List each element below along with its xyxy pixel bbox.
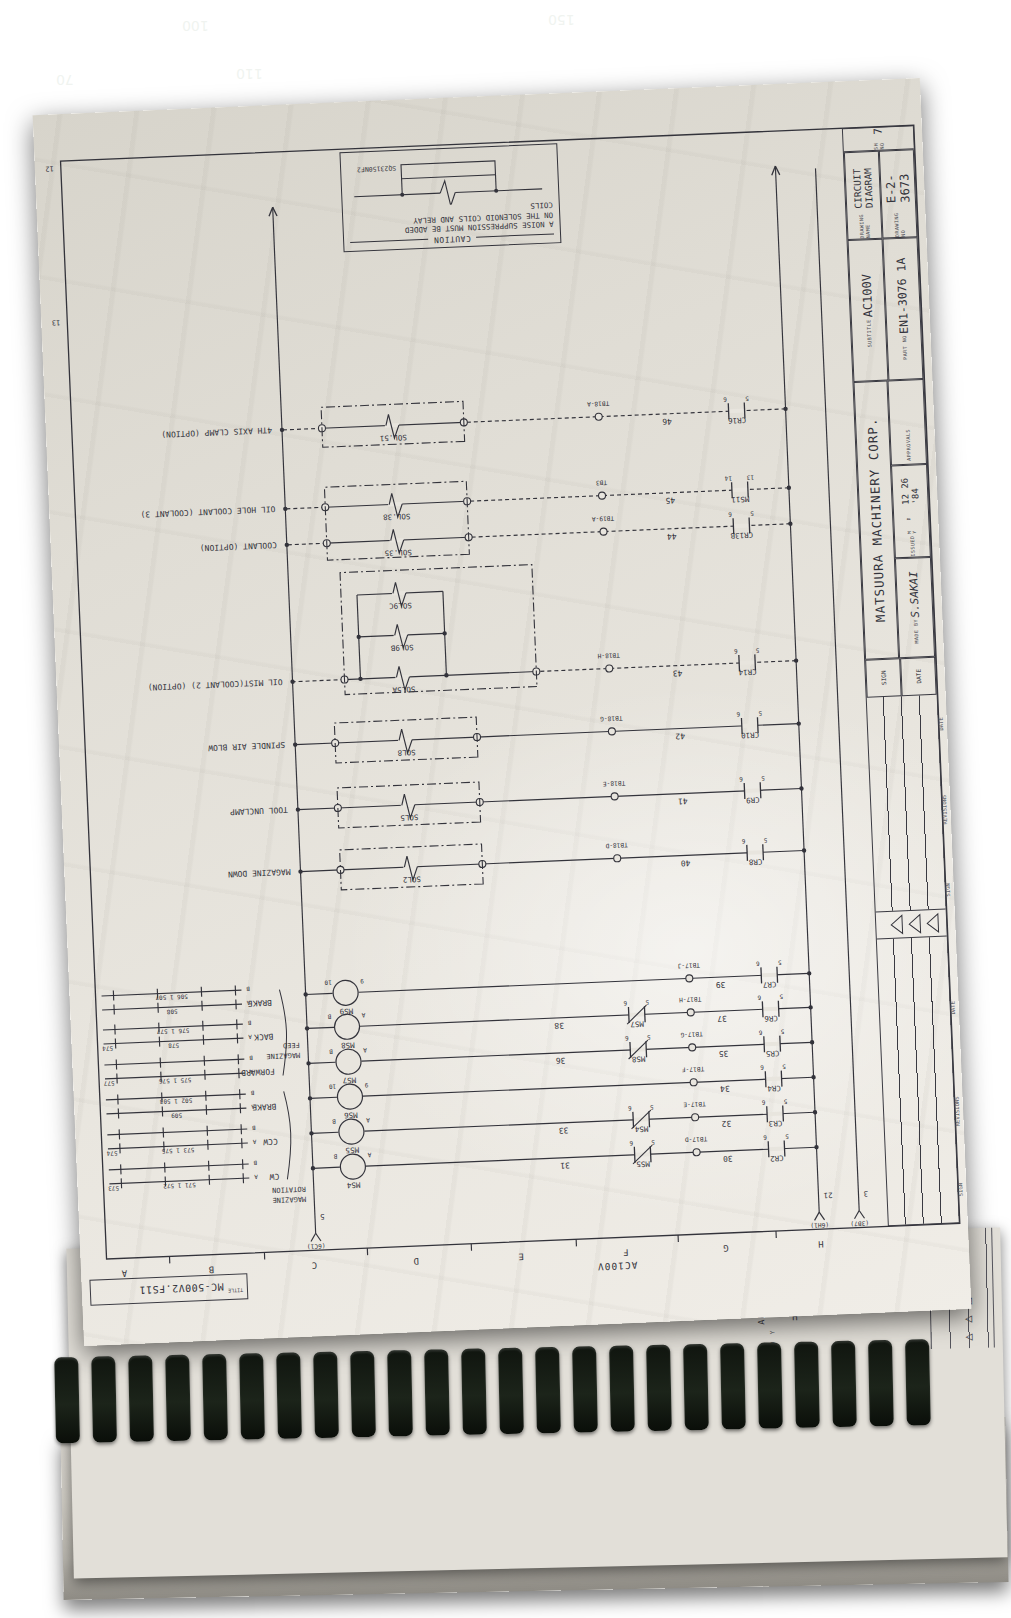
motor-rung-34: CR45634TB17-FMS6910BRAKEAB509502 1 503 — [106, 1061, 817, 1130]
sheet-face: (3B7)3(6H1)21(6C1)51312CR25630TB17-DMS55… — [33, 78, 972, 1346]
svg-text:574: 574 — [102, 1045, 114, 1052]
svg-text:574: 574 — [106, 1150, 118, 1157]
svg-text:13: 13 — [52, 318, 61, 326]
svg-text:6: 6 — [757, 994, 761, 1001]
drawing-name-cell: DRAWING NAME CIRCUIT DIAGRAM — [844, 151, 883, 240]
svg-text:39: 39 — [715, 980, 725, 989]
svg-text:44: 44 — [667, 532, 677, 541]
comb-tooth — [831, 1341, 857, 1427]
svg-text:6: 6 — [761, 1099, 765, 1106]
svg-text:MS7: MS7 — [630, 1019, 644, 1029]
svg-text:5: 5 — [782, 1063, 786, 1070]
svg-text:MS5: MS5 — [345, 1145, 359, 1155]
svg-text:TB17-E: TB17-E — [683, 1101, 706, 1109]
grid-letter: D — [413, 1256, 419, 1266]
svg-text:SOL.51: SOL.51 — [380, 433, 407, 443]
svg-text:578: 578 — [168, 1042, 180, 1049]
svg-text:SOL9C: SOL9C — [389, 601, 412, 611]
svg-text:OIL HOLE COOLANT (COOLANT 3): OIL HOLE COOLANT (COOLANT 3) — [140, 504, 275, 519]
svg-text:CR2: CR2 — [770, 1154, 784, 1164]
comb-tooth — [757, 1342, 783, 1428]
svg-text:MS6: MS6 — [343, 1110, 357, 1120]
svg-text:A: A — [366, 1117, 370, 1124]
caution-rule — [476, 234, 554, 238]
svg-text:5: 5 — [750, 510, 754, 517]
strip-margin-label: REVISIONS — [954, 1096, 963, 1126]
svg-text:B: B — [329, 1048, 333, 1055]
svg-text:6: 6 — [760, 1064, 764, 1071]
sheet-no-cell: SH NO 7 — [843, 126, 914, 152]
svg-text:TB18-E: TB18-E — [603, 780, 626, 788]
ladder-schematic: (3B7)3(6H1)21(6C1)51312CR25630TB17-DMS55… — [33, 78, 972, 1346]
svg-text:TB18-H: TB18-H — [597, 652, 620, 660]
comb-tooth — [387, 1350, 413, 1436]
svg-text:508: 508 — [166, 1008, 178, 1015]
svg-text:B: B — [332, 1118, 336, 1125]
svg-text:5: 5 — [755, 647, 759, 654]
svg-text:MS7: MS7 — [342, 1075, 356, 1085]
comb-tooth — [276, 1352, 302, 1438]
svg-text:5: 5 — [777, 960, 781, 967]
svg-text:43: 43 — [672, 668, 682, 677]
svg-text:5: 5 — [783, 1098, 787, 1105]
svg-text:5: 5 — [779, 993, 783, 1000]
subtitle-label: SUBTITLE — [865, 319, 872, 347]
comb-tooth — [720, 1343, 746, 1429]
comb-tooth — [498, 1348, 524, 1434]
revision-triangle-icon: ◁ — [965, 1312, 973, 1324]
svg-text:CR6: CR6 — [764, 1014, 778, 1024]
svg-text:MS8: MS8 — [631, 1054, 645, 1064]
svg-text:MS4: MS4 — [634, 1124, 648, 1134]
mat-number: 110 — [236, 66, 263, 82]
svg-text:35: 35 — [718, 1049, 728, 1058]
strip-margin-label: SIGN — [957, 1183, 966, 1197]
drawing-no-cell: DRAWING NO E-2-3673 — [879, 149, 918, 238]
svg-text:CW: CW — [269, 1172, 279, 1181]
grid-letter: G — [723, 1243, 729, 1253]
svg-text:6: 6 — [733, 648, 737, 655]
svg-text:4TH AXIS CLAMP (OPTION): 4TH AXIS CLAMP (OPTION) — [161, 425, 272, 439]
svg-text:6: 6 — [624, 1035, 628, 1042]
svg-text:6: 6 — [728, 511, 732, 518]
svg-text:TB18-A: TB18-A — [587, 400, 610, 408]
comb-tooth — [128, 1355, 154, 1441]
revision-triangle-icon — [891, 915, 903, 933]
motor-rung-32: CR35632TB17-EMS45633MS5ABCCWAB573 1 5755… — [105, 1096, 818, 1165]
part-no-value: EN1-3076 1A — [894, 257, 911, 334]
svg-text:34: 34 — [720, 1084, 730, 1093]
motor-rung-30: CR25630TB17-DMS55631MS4ABCWAB571 1 57257… — [107, 1131, 820, 1200]
svg-text:MS4: MS4 — [346, 1180, 360, 1190]
comb-tooth — [868, 1340, 894, 1426]
revision-triangle-icon — [927, 914, 939, 932]
svg-text:B: B — [246, 986, 250, 992]
svg-text:576 1 577: 576 1 577 — [156, 1027, 189, 1035]
suppressor-part-number: SQ23150NF2 — [357, 164, 397, 174]
svg-text:CCW: CCW — [263, 1137, 278, 1147]
svg-text:COOLANT (OPTION): COOLANT (OPTION) — [200, 540, 277, 552]
comb-tooth — [424, 1349, 450, 1435]
svg-text:6: 6 — [629, 1140, 633, 1147]
comb-tooth — [646, 1345, 672, 1431]
svg-text:SOL2: SOL2 — [403, 875, 421, 885]
part-no-label: PART NO — [901, 336, 908, 361]
svg-text:CR14: CR14 — [738, 667, 757, 677]
svg-text:B: B — [333, 1153, 337, 1160]
svg-text:CR13B: CR13B — [730, 530, 753, 540]
photo-of-circuit-diagram-page: 100 110 150 70 ◁ ◁ ◁ AP CARD M D Y G H (… — [0, 0, 1011, 1618]
sol-rung-42: CR105642TB18-GSOL8SPINDLE AIR BLOW — [207, 708, 801, 766]
comb-tooth — [202, 1354, 228, 1440]
approvals-cell: APPROVALS — [887, 379, 927, 465]
svg-text:TB17-J: TB17-J — [677, 962, 700, 970]
comb-tooth — [609, 1345, 635, 1431]
svg-text:TB3: TB3 — [596, 479, 608, 486]
sol-rung-45: MS11131445TB3SOL.38OIL HOLE COOLANT (COO… — [140, 472, 792, 532]
comb-tooth — [794, 1341, 820, 1427]
comb-tooth — [313, 1352, 339, 1438]
svg-text:33: 33 — [558, 1126, 568, 1135]
subtitle-value: AC100V — [859, 273, 875, 317]
svg-text:B: B — [250, 1090, 254, 1096]
svg-text:OIL MIST(COOLANT 2) (OPTION): OIL MIST(COOLANT 2) (OPTION) — [148, 677, 283, 692]
svg-text:12: 12 — [45, 164, 54, 172]
date-header-cell: DATE — [900, 657, 937, 696]
comb-tooth — [91, 1356, 117, 1442]
svg-text:45: 45 — [665, 496, 675, 505]
svg-text:506 1 507: 506 1 507 — [155, 993, 188, 1001]
made-by-cell: MADE BY S.SAKAI — [895, 557, 935, 658]
revision-triangle-icon — [909, 915, 921, 933]
svg-text:A: A — [254, 1174, 258, 1180]
svg-text:5: 5 — [785, 1133, 789, 1140]
mat-number: 150 — [548, 12, 575, 28]
svg-text:5: 5 — [651, 1139, 655, 1146]
svg-text:6: 6 — [741, 838, 745, 845]
svg-text:A: A — [361, 1012, 365, 1019]
svg-text:5: 5 — [646, 1034, 650, 1041]
svg-text:10: 10 — [328, 1083, 336, 1090]
comb-tooth — [905, 1339, 931, 1425]
svg-text:9: 9 — [364, 1082, 368, 1089]
svg-text:SOL8: SOL8 — [397, 748, 416, 758]
svg-text:SPINDLE AIR BLOW: SPINDLE AIR BLOW — [208, 740, 286, 752]
svg-text:B: B — [247, 1020, 251, 1026]
svg-text:6: 6 — [755, 960, 759, 967]
caution-title: CAUTION — [433, 233, 471, 245]
svg-text:TB17-D: TB17-D — [684, 1136, 707, 1144]
circuit-diagram-sheet: (3B7)3(6H1)21(6C1)51312CR25630TB17-DMS55… — [33, 78, 972, 1346]
svg-text:FORWARD: FORWARD — [241, 1067, 275, 1077]
strip-margin-label: REVISIONS — [941, 795, 950, 825]
comb-tooth — [239, 1353, 265, 1439]
strip-margin-label: DATE — [950, 1001, 959, 1015]
file-box-value: MC-500V2.FS11 — [139, 1282, 224, 1297]
svg-text:509: 509 — [171, 1112, 183, 1119]
svg-text:10: 10 — [324, 979, 332, 986]
part-no-cell: PART NO EN1-3076 1A — [883, 237, 924, 380]
svg-text:A: A — [248, 1034, 252, 1040]
sheet-no-label: SH NO — [872, 137, 885, 150]
svg-text:5: 5 — [645, 999, 649, 1006]
svg-text:CR3: CR3 — [769, 1119, 783, 1129]
svg-text:6: 6 — [763, 1134, 767, 1141]
strip-margin-label: SIGN — [945, 883, 954, 897]
sol-rung-46: CR165646TB18-ASOL.514TH AXIS CLAMP (OPTI… — [161, 393, 789, 452]
grid-letter: E — [518, 1252, 524, 1262]
subtitle-cell: SUBTITLE AC100V — [848, 239, 889, 382]
svg-text:6: 6 — [736, 711, 740, 718]
svg-text:5: 5 — [763, 837, 767, 844]
svg-text:6: 6 — [627, 1105, 631, 1112]
caution-rule — [350, 239, 428, 243]
svg-text:14: 14 — [724, 475, 732, 482]
svg-text:577: 577 — [103, 1080, 115, 1087]
issued-units: M D Y — [906, 507, 917, 534]
svg-text:575 1 576: 575 1 576 — [158, 1077, 191, 1085]
svg-text:A: A — [249, 1069, 253, 1075]
supply-voltage-label: AC100V — [597, 1260, 638, 1273]
revision-triangle-row — [876, 909, 947, 940]
svg-text:SOL5A: SOL5A — [392, 685, 415, 695]
svg-text:MAGAZINE: MAGAZINE — [272, 1195, 306, 1204]
svg-text:6: 6 — [758, 1029, 762, 1036]
comb-tooth — [535, 1347, 561, 1433]
revision-triangle-icon: ◁ — [965, 1330, 973, 1342]
svg-text:6: 6 — [739, 776, 743, 783]
svg-text:9: 9 — [360, 978, 364, 985]
svg-text:A: A — [363, 1047, 367, 1054]
svg-text:TB18-D: TB18-D — [605, 842, 628, 850]
svg-text:6: 6 — [723, 396, 727, 403]
comb-tooth — [572, 1346, 598, 1432]
svg-text:SOL.35: SOL.35 — [385, 548, 412, 558]
svg-text:BACK: BACK — [254, 1032, 274, 1042]
sheet-no-value: 7 — [871, 127, 884, 134]
svg-text:B: B — [252, 1125, 256, 1131]
svg-text:B: B — [327, 1013, 331, 1020]
svg-text:A: A — [246, 1000, 250, 1006]
revision-rows — [867, 695, 946, 912]
comb-tooth — [350, 1351, 376, 1437]
svg-text:5: 5 — [649, 1104, 653, 1111]
svg-text:TB17-H: TB17-H — [679, 996, 702, 1004]
issued-label: ISSUED — [909, 535, 916, 556]
sol-rung-44: CR13B5644TB19-ASOL.35COOLANT (OPTION) — [199, 508, 793, 566]
drawing-no-label: DRAWING NO — [893, 205, 906, 237]
mat-number: 70 — [56, 72, 74, 88]
revision-rows — [877, 937, 959, 1226]
svg-text:CR7: CR7 — [763, 980, 777, 990]
svg-text:38: 38 — [554, 1021, 564, 1030]
svg-text:SOL5: SOL5 — [400, 813, 418, 823]
svg-text:MS8: MS8 — [340, 1040, 354, 1050]
svg-text:BRAKE: BRAKE — [248, 998, 273, 1008]
svg-text:BRAKE: BRAKE — [252, 1102, 277, 1112]
svg-text:CR9: CR9 — [746, 795, 760, 805]
svg-text:6: 6 — [623, 1000, 627, 1007]
sol-rung-40: CR85640TB18-DSOL2MAGAZINE DOWN — [227, 834, 807, 891]
grid-letter: H — [818, 1239, 824, 1249]
svg-text:37: 37 — [717, 1014, 727, 1023]
svg-text:B: B — [253, 1160, 257, 1166]
approvals-label: APPROVALS — [905, 429, 912, 461]
svg-text:5: 5 — [745, 395, 749, 402]
svg-text:FEED: FEED — [283, 1041, 300, 1050]
svg-text:TOOL UNCLAMP: TOOL UNCLAMP — [230, 805, 288, 816]
svg-text:36: 36 — [555, 1056, 565, 1065]
strip-margin-label: DATE — [938, 717, 947, 731]
file-box-label: TITLE — [228, 1287, 243, 1294]
svg-text:5: 5 — [320, 1212, 325, 1221]
svg-text:TB17-G: TB17-G — [680, 1031, 703, 1039]
drawing-name-label: DRAWING NAME — [858, 211, 871, 239]
drawing-name-value: CIRCUIT DIAGRAM — [850, 152, 874, 209]
svg-text:5: 5 — [780, 1028, 784, 1035]
svg-text:3: 3 — [863, 1189, 868, 1198]
motor-rung-39: CR75639TB17-JMS9910BRAKEAB508506 1 507 — [101, 957, 812, 1026]
svg-text:42: 42 — [675, 731, 685, 740]
svg-text:573 1 575: 573 1 575 — [161, 1147, 194, 1155]
suppressor-circuit-figure: SQ23150NF2 — [345, 156, 553, 209]
grid-letter: C — [311, 1260, 317, 1270]
svg-text:41: 41 — [678, 796, 688, 805]
svg-text:40: 40 — [680, 858, 690, 867]
svg-text:A: A — [252, 1139, 256, 1145]
svg-text:571 1 572: 571 1 572 — [163, 1182, 196, 1190]
motor-rung-37: CR65637TB17-HMS75638MS8ABBACKAB578576 1 … — [101, 991, 814, 1060]
svg-text:CR10: CR10 — [740, 730, 759, 740]
svg-text:MAGAZINE DOWN: MAGAZINE DOWN — [228, 867, 291, 879]
comb-tooth — [54, 1357, 80, 1443]
svg-text:MS11: MS11 — [731, 494, 749, 504]
grid-letter: F — [623, 1247, 629, 1257]
svg-text:32: 32 — [721, 1119, 731, 1128]
svg-text:5: 5 — [758, 710, 762, 717]
svg-text:30: 30 — [723, 1154, 733, 1163]
svg-text:MS5: MS5 — [636, 1159, 650, 1169]
mat-number: 100 — [182, 18, 209, 34]
svg-text:TB17-F: TB17-F — [682, 1066, 705, 1074]
svg-text:46: 46 — [662, 417, 672, 426]
issued-cell: ISSUED M D Y 12 26 '84 — [891, 464, 931, 558]
motor-rung-35: CR55635TB17-GMS85636MS7ABFORWARDAB575 1 … — [102, 1026, 815, 1095]
svg-text:502 1 503: 502 1 503 — [159, 1097, 192, 1105]
svg-text:MS9: MS9 — [339, 1006, 353, 1016]
comb-tooth — [165, 1355, 191, 1441]
svg-text:CR16: CR16 — [727, 416, 746, 426]
svg-text:13: 13 — [746, 474, 754, 481]
svg-text:CR8: CR8 — [748, 857, 762, 867]
svg-text:MAGAZINE: MAGAZINE — [266, 1051, 300, 1060]
svg-text:ROTATION: ROTATION — [272, 1185, 306, 1194]
svg-text:TB18-G: TB18-G — [600, 715, 623, 723]
svg-text:SOL9B: SOL9B — [390, 643, 413, 653]
svg-text:CR5: CR5 — [766, 1049, 780, 1059]
comb-tooth — [461, 1348, 487, 1434]
comb-tooth — [683, 1344, 709, 1430]
svg-text:SOL.38: SOL.38 — [383, 512, 411, 522]
svg-text:573: 573 — [108, 1185, 120, 1192]
grid-letter: A — [122, 1268, 128, 1278]
made-by-value: S.SAKAI — [907, 571, 922, 618]
svg-text:31: 31 — [560, 1161, 570, 1170]
svg-text:CR4: CR4 — [767, 1084, 781, 1094]
svg-text:5: 5 — [761, 775, 765, 782]
svg-text:A: A — [367, 1152, 371, 1159]
drawing-no-value: E-2-3673 — [882, 150, 912, 203]
made-by-label: MADE BY — [912, 619, 919, 644]
svg-text:21: 21 — [823, 1191, 832, 1200]
svg-text:A: A — [251, 1104, 255, 1110]
svg-text:TB19-A: TB19-A — [591, 515, 614, 523]
sol-rung-43: CR145643TB18-HSOL5ASOL9BSOL9COIL MIST(CO… — [144, 566, 799, 705]
issued-date: 12 26 '84 — [899, 465, 921, 505]
svg-text:B: B — [249, 1055, 253, 1061]
sol-rung-41: CR95641TB18-ESOL5TOOL UNCLAMP — [229, 772, 804, 829]
grid-letter: B — [208, 1265, 214, 1275]
sign-header-cell: SIGN — [865, 658, 902, 697]
caution-note: CAUTION A NOISE SUPPRESSION MUST BE ADDE… — [339, 143, 561, 252]
